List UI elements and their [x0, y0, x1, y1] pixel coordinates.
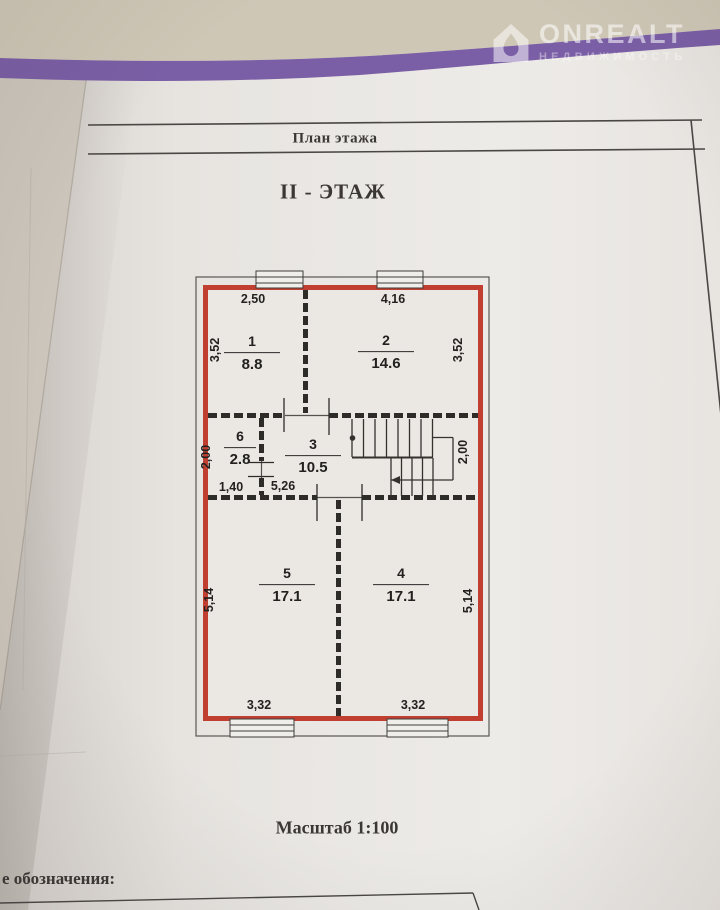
brand-subtitle: НЕДВИЖИМОСТЬ	[539, 51, 686, 63]
dim-side-lower-left: 5,14	[202, 588, 216, 612]
floor-title: II - ЭТАЖ	[280, 180, 386, 205]
room-number: 4	[373, 565, 429, 585]
room-label-2: 2 14.6	[358, 332, 414, 374]
onrealt-watermark: ONREALT НЕДВИЖИМОСТЬ	[492, 20, 686, 64]
room-number: 3	[285, 436, 341, 456]
room-area: 17.1	[373, 585, 429, 607]
dim-side-upper-left: 3,52	[208, 338, 222, 362]
dim-room6-width: 1,40	[219, 480, 243, 494]
dim-room3-width: 5,26	[271, 479, 295, 493]
dim-side-upper-right: 3,52	[451, 338, 465, 362]
room-area: 17.1	[259, 585, 315, 607]
room-area: 2.8	[224, 448, 256, 470]
dim-bottom-left: 3,32	[247, 698, 271, 712]
doc-section-title: План этажа	[293, 131, 378, 148]
dim-top-left: 2,50	[241, 292, 265, 306]
room-number: 2	[358, 332, 414, 352]
room-label-4: 4 17.1	[373, 565, 429, 607]
room-label-5: 5 17.1	[259, 565, 315, 607]
scale-label: Масштаб 1:100	[276, 818, 399, 839]
dim-top-right: 4,16	[381, 292, 405, 306]
room-number: 1	[224, 333, 280, 353]
legend-heading-partial: е обозначения:	[2, 869, 115, 889]
brand-name: ONREALT	[539, 20, 686, 48]
dim-bottom-right: 3,32	[401, 698, 425, 712]
dim-stairs-right: 2,00	[456, 440, 470, 464]
onrealt-wordmark: ONREALT НЕДВИЖИМОСТЬ	[539, 20, 686, 63]
room-number: 6	[224, 428, 256, 448]
room-number: 5	[259, 565, 315, 585]
room-label-3: 3 10.5	[285, 436, 341, 478]
room-area: 8.8	[224, 353, 280, 375]
room-area: 14.6	[358, 352, 414, 374]
room-area: 10.5	[285, 456, 341, 478]
dim-mid-left: 2,00	[199, 445, 213, 469]
onrealt-house-icon	[492, 22, 530, 64]
room-label-6: 6 2.8	[224, 428, 256, 470]
document-photo: ONREALT НЕДВИЖИМОСТЬ План этажа II - ЭТА…	[0, 0, 720, 910]
dim-side-lower-right: 5,14	[461, 589, 475, 613]
room-label-1: 1 8.8	[224, 333, 280, 375]
